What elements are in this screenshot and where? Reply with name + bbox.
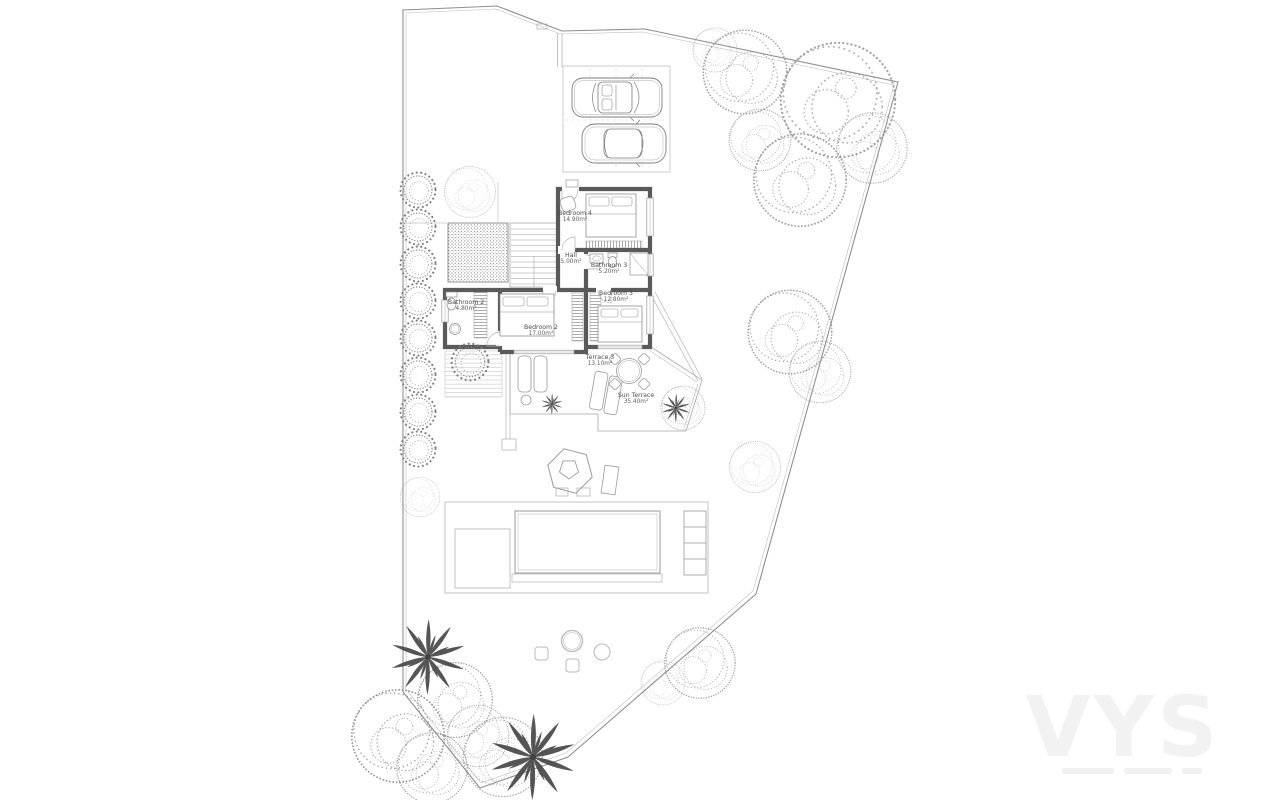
tree-canopy [661, 386, 705, 430]
dark-shrub [542, 393, 563, 415]
pool-area [445, 502, 708, 593]
pool-edge-strip [512, 574, 662, 582]
sun-lounger [518, 356, 531, 392]
watermark-logo: VYS [998, 678, 1248, 776]
gazebo-hexagon [548, 449, 592, 493]
planter-box [502, 439, 516, 450]
parking-area [563, 66, 670, 172]
swimming-pool [515, 511, 660, 573]
pool-loungers [684, 511, 706, 575]
gravel-roof-area [448, 223, 508, 282]
site-path-lines [403, 182, 498, 223]
garden-structures [548, 449, 619, 496]
gazebo-inner [560, 461, 579, 479]
pool-side-pad [455, 529, 510, 588]
tree-cluster-top-right [693, 28, 907, 226]
site-plan-page: Bedroom 4 14.90m² Hall 5.00m² Bathroom 3… [0, 0, 1280, 800]
tree-canopy [444, 166, 495, 217]
bed-bedroom-3 [598, 306, 642, 342]
staircase [510, 223, 558, 287]
sun-lounger [534, 356, 547, 392]
pool-deck [445, 502, 708, 593]
driveway-fence-line [558, 33, 563, 67]
terrace-furniture [518, 353, 650, 416]
dining-table-set [609, 353, 651, 391]
side-deck [445, 351, 502, 397]
tree-cluster-bottom-right [641, 628, 735, 705]
stepping-stones [535, 631, 610, 673]
lounger-mat [601, 465, 619, 495]
bathroom-3-fixtures [590, 253, 648, 275]
bed-bedroom-4 [586, 194, 636, 237]
side-table [521, 395, 531, 405]
bed-bedroom-2 [500, 294, 554, 336]
vent-shaft [566, 180, 578, 187]
car-top-view-2 [582, 120, 666, 167]
floor-plan [442, 180, 702, 450]
retaining-wall [506, 352, 517, 446]
tree-canopy [729, 441, 780, 492]
tree-cluster-bottom-left [352, 619, 575, 800]
palm-tree [391, 619, 464, 695]
watermark-tagline [1062, 768, 1202, 774]
car-top-view-1 [572, 74, 662, 121]
palm-tree [491, 714, 575, 800]
